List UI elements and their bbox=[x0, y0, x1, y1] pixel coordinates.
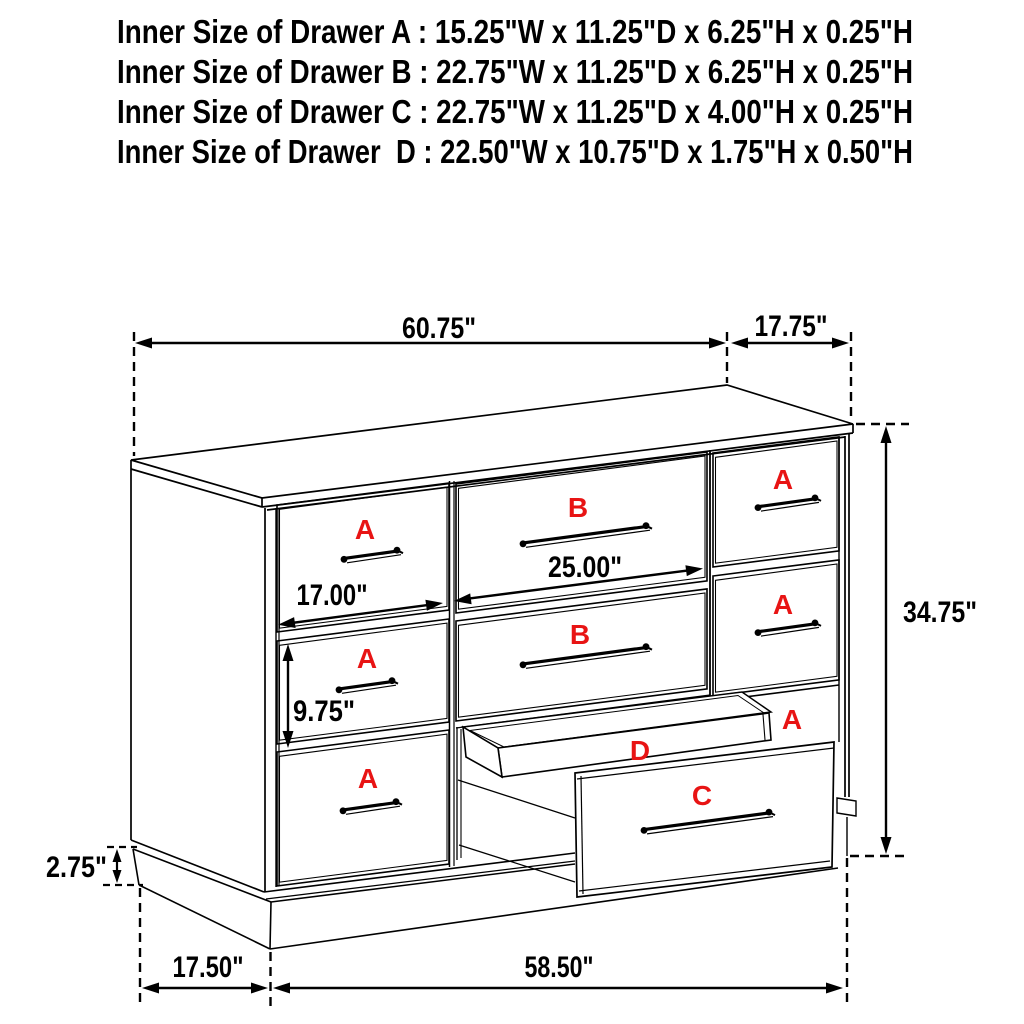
svg-text:9.75": 9.75" bbox=[293, 695, 355, 728]
svg-text:25.00": 25.00" bbox=[548, 551, 622, 584]
svg-text:A: A bbox=[773, 464, 793, 495]
svg-text:A: A bbox=[355, 514, 375, 545]
svg-text:D: D bbox=[630, 735, 650, 766]
svg-text:60.75": 60.75" bbox=[402, 312, 476, 345]
svg-text:A: A bbox=[773, 589, 793, 620]
svg-text:A: A bbox=[358, 763, 378, 794]
svg-text:Inner Size of Drawer D : 22.5: Inner Size of Drawer D : 22.50"W x 10.75… bbox=[117, 133, 913, 170]
svg-text:A: A bbox=[782, 704, 802, 735]
svg-text:2.75": 2.75" bbox=[46, 851, 107, 884]
svg-text:58.50": 58.50" bbox=[525, 951, 594, 984]
svg-text:17.50": 17.50" bbox=[173, 951, 244, 984]
svg-text:34.75": 34.75" bbox=[903, 596, 977, 629]
svg-text:B: B bbox=[570, 619, 590, 650]
svg-text:Inner Size of Drawer C : 22.75: Inner Size of Drawer C : 22.75"W x 11.25… bbox=[117, 93, 913, 130]
svg-text:17.00": 17.00" bbox=[297, 579, 368, 612]
svg-text:Inner Size of Drawer B : 22.75: Inner Size of Drawer B : 22.75"W x 11.25… bbox=[117, 53, 913, 90]
svg-text:B: B bbox=[568, 492, 588, 523]
svg-text:C: C bbox=[692, 780, 712, 811]
svg-text:Inner Size of Drawer A : 15.25: Inner Size of Drawer A : 15.25"W x 11.25… bbox=[117, 13, 913, 50]
svg-text:A: A bbox=[357, 643, 377, 674]
svg-text:17.75": 17.75" bbox=[755, 310, 828, 343]
